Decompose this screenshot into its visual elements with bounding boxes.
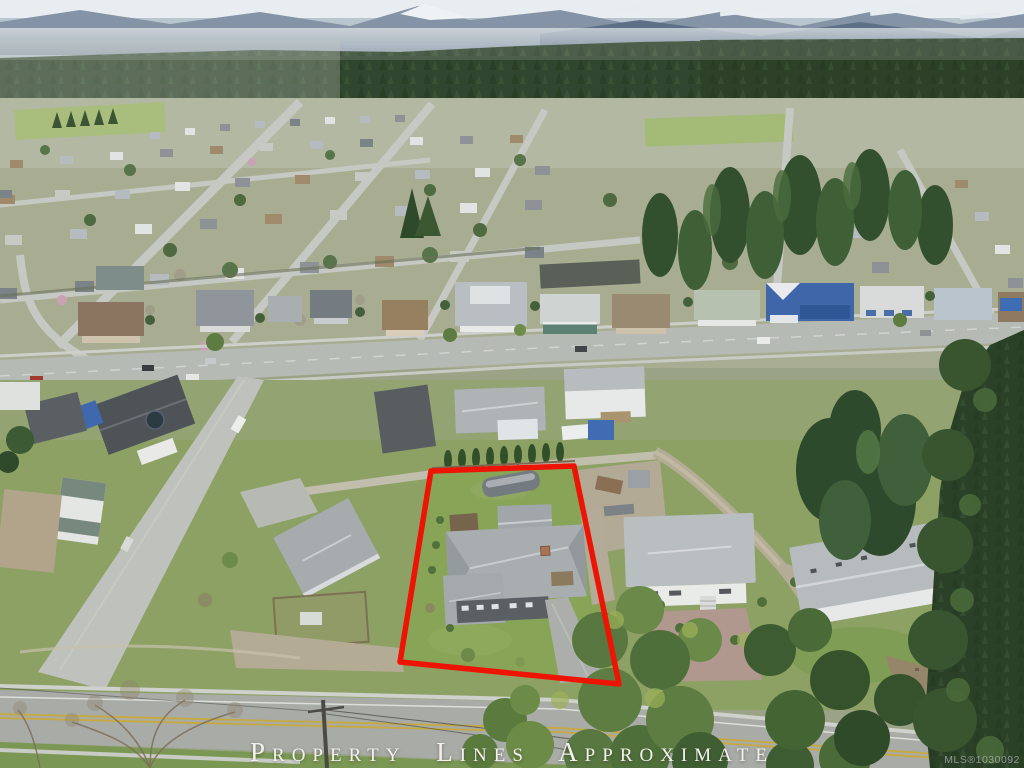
caption-property-lines: Property Lines Approximate bbox=[250, 737, 774, 768]
blue-house bbox=[766, 283, 854, 323]
mls-watermark: MLS®1030092 bbox=[944, 754, 1020, 766]
aerial-photo: Property Lines Approximate MLS®1030092 bbox=[0, 0, 1024, 768]
photo-illustration bbox=[0, 0, 1024, 768]
split-level-house bbox=[54, 477, 106, 545]
